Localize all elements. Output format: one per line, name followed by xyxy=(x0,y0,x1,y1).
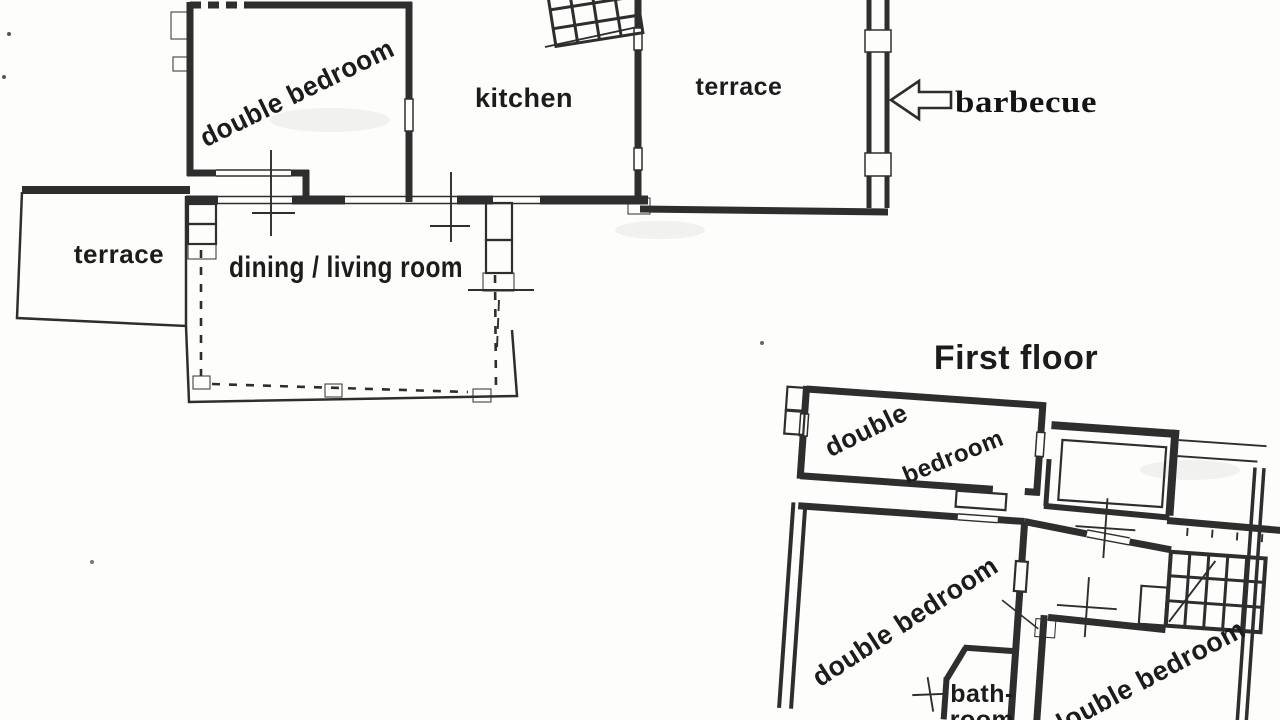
first-floor-title: First floor xyxy=(934,339,1098,377)
gf-terrace-upper-label: terrace xyxy=(696,73,783,101)
left-arrow-icon xyxy=(891,81,951,119)
ff-bathroom-label-line2: room xyxy=(950,706,1015,720)
gf-terrace-left-label: terrace xyxy=(74,239,164,269)
barbecue-label: barbecue xyxy=(955,84,1097,119)
ground-floor-plan xyxy=(17,0,951,402)
floor-plan-scan: double bedroom kitchen terrace barbecue … xyxy=(0,0,1280,720)
gf-dining-living-walls xyxy=(186,203,534,402)
gf-main-wall xyxy=(22,150,648,242)
gf-kitchen-label: kitchen xyxy=(475,83,573,113)
gf-double-bedroom-label: double bedroom xyxy=(195,33,399,153)
ff-bathroom-label-line1: bath- xyxy=(950,680,1014,708)
ff-double-bedroom-top-label-line1: double xyxy=(820,397,912,463)
ff-double-bedroom-top-label-line2: bedroom xyxy=(899,425,1008,490)
gf-terrace-upper-walls xyxy=(640,0,891,212)
ff-double-bedroom-left-label: double bedroom xyxy=(807,550,1004,692)
gf-stairs-hatch xyxy=(547,0,643,46)
gf-dining-living-label: dining / living room xyxy=(229,251,463,284)
floor-plan-drawing: double bedroom kitchen terrace barbecue … xyxy=(0,0,1280,720)
